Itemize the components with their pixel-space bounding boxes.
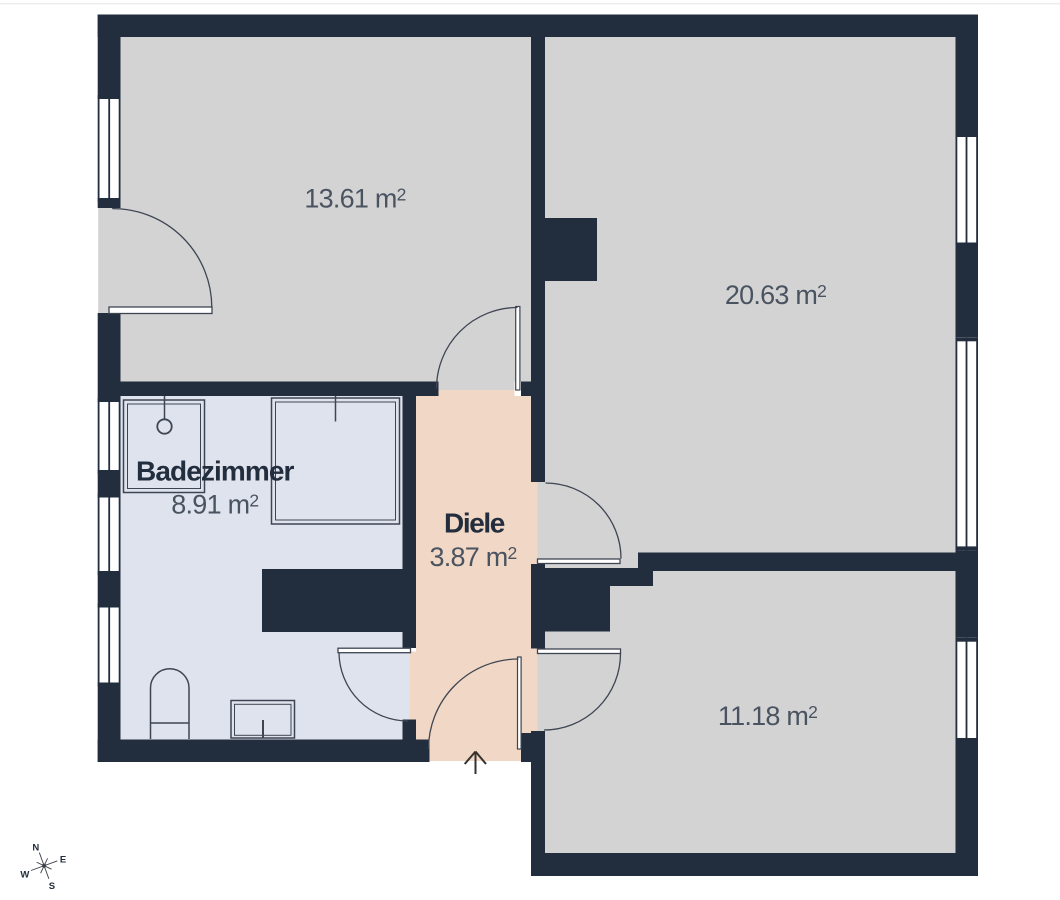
svg-text:W: W <box>20 870 29 881</box>
svg-text:13.61 m2: 13.61 m2 <box>304 184 405 214</box>
svg-text:Diele: Diele <box>444 508 505 539</box>
svg-text:E: E <box>60 855 66 866</box>
svg-text:20.63 m2: 20.63 m2 <box>725 280 826 310</box>
svg-text:S: S <box>49 881 55 892</box>
svg-text:8.91 m2: 8.91 m2 <box>171 490 258 520</box>
svg-text:Badezimmer: Badezimmer <box>136 456 295 487</box>
svg-text:11.18 m2: 11.18 m2 <box>718 701 817 731</box>
svg-text:N: N <box>32 843 39 854</box>
svg-text:3.87 m2: 3.87 m2 <box>429 542 516 572</box>
